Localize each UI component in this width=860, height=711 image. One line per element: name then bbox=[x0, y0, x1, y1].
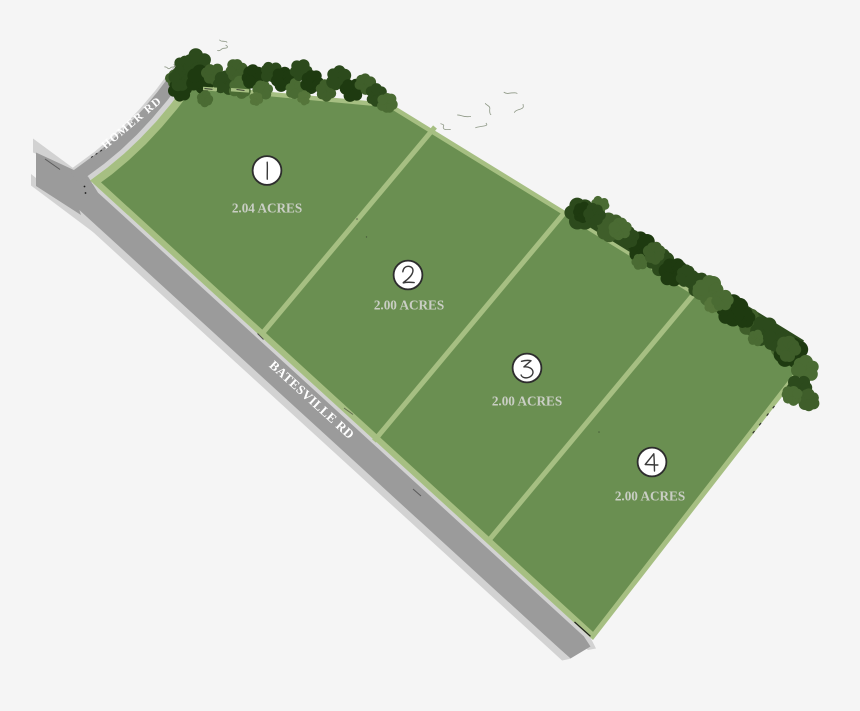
svg-text:2.00 ACRES: 2.00 ACRES bbox=[374, 298, 444, 313]
svg-text:2.00 ACRES: 2.00 ACRES bbox=[615, 489, 685, 504]
svg-text:2.04 ACRES: 2.04 ACRES bbox=[232, 201, 302, 216]
svg-text:2.00 ACRES: 2.00 ACRES bbox=[492, 394, 562, 409]
